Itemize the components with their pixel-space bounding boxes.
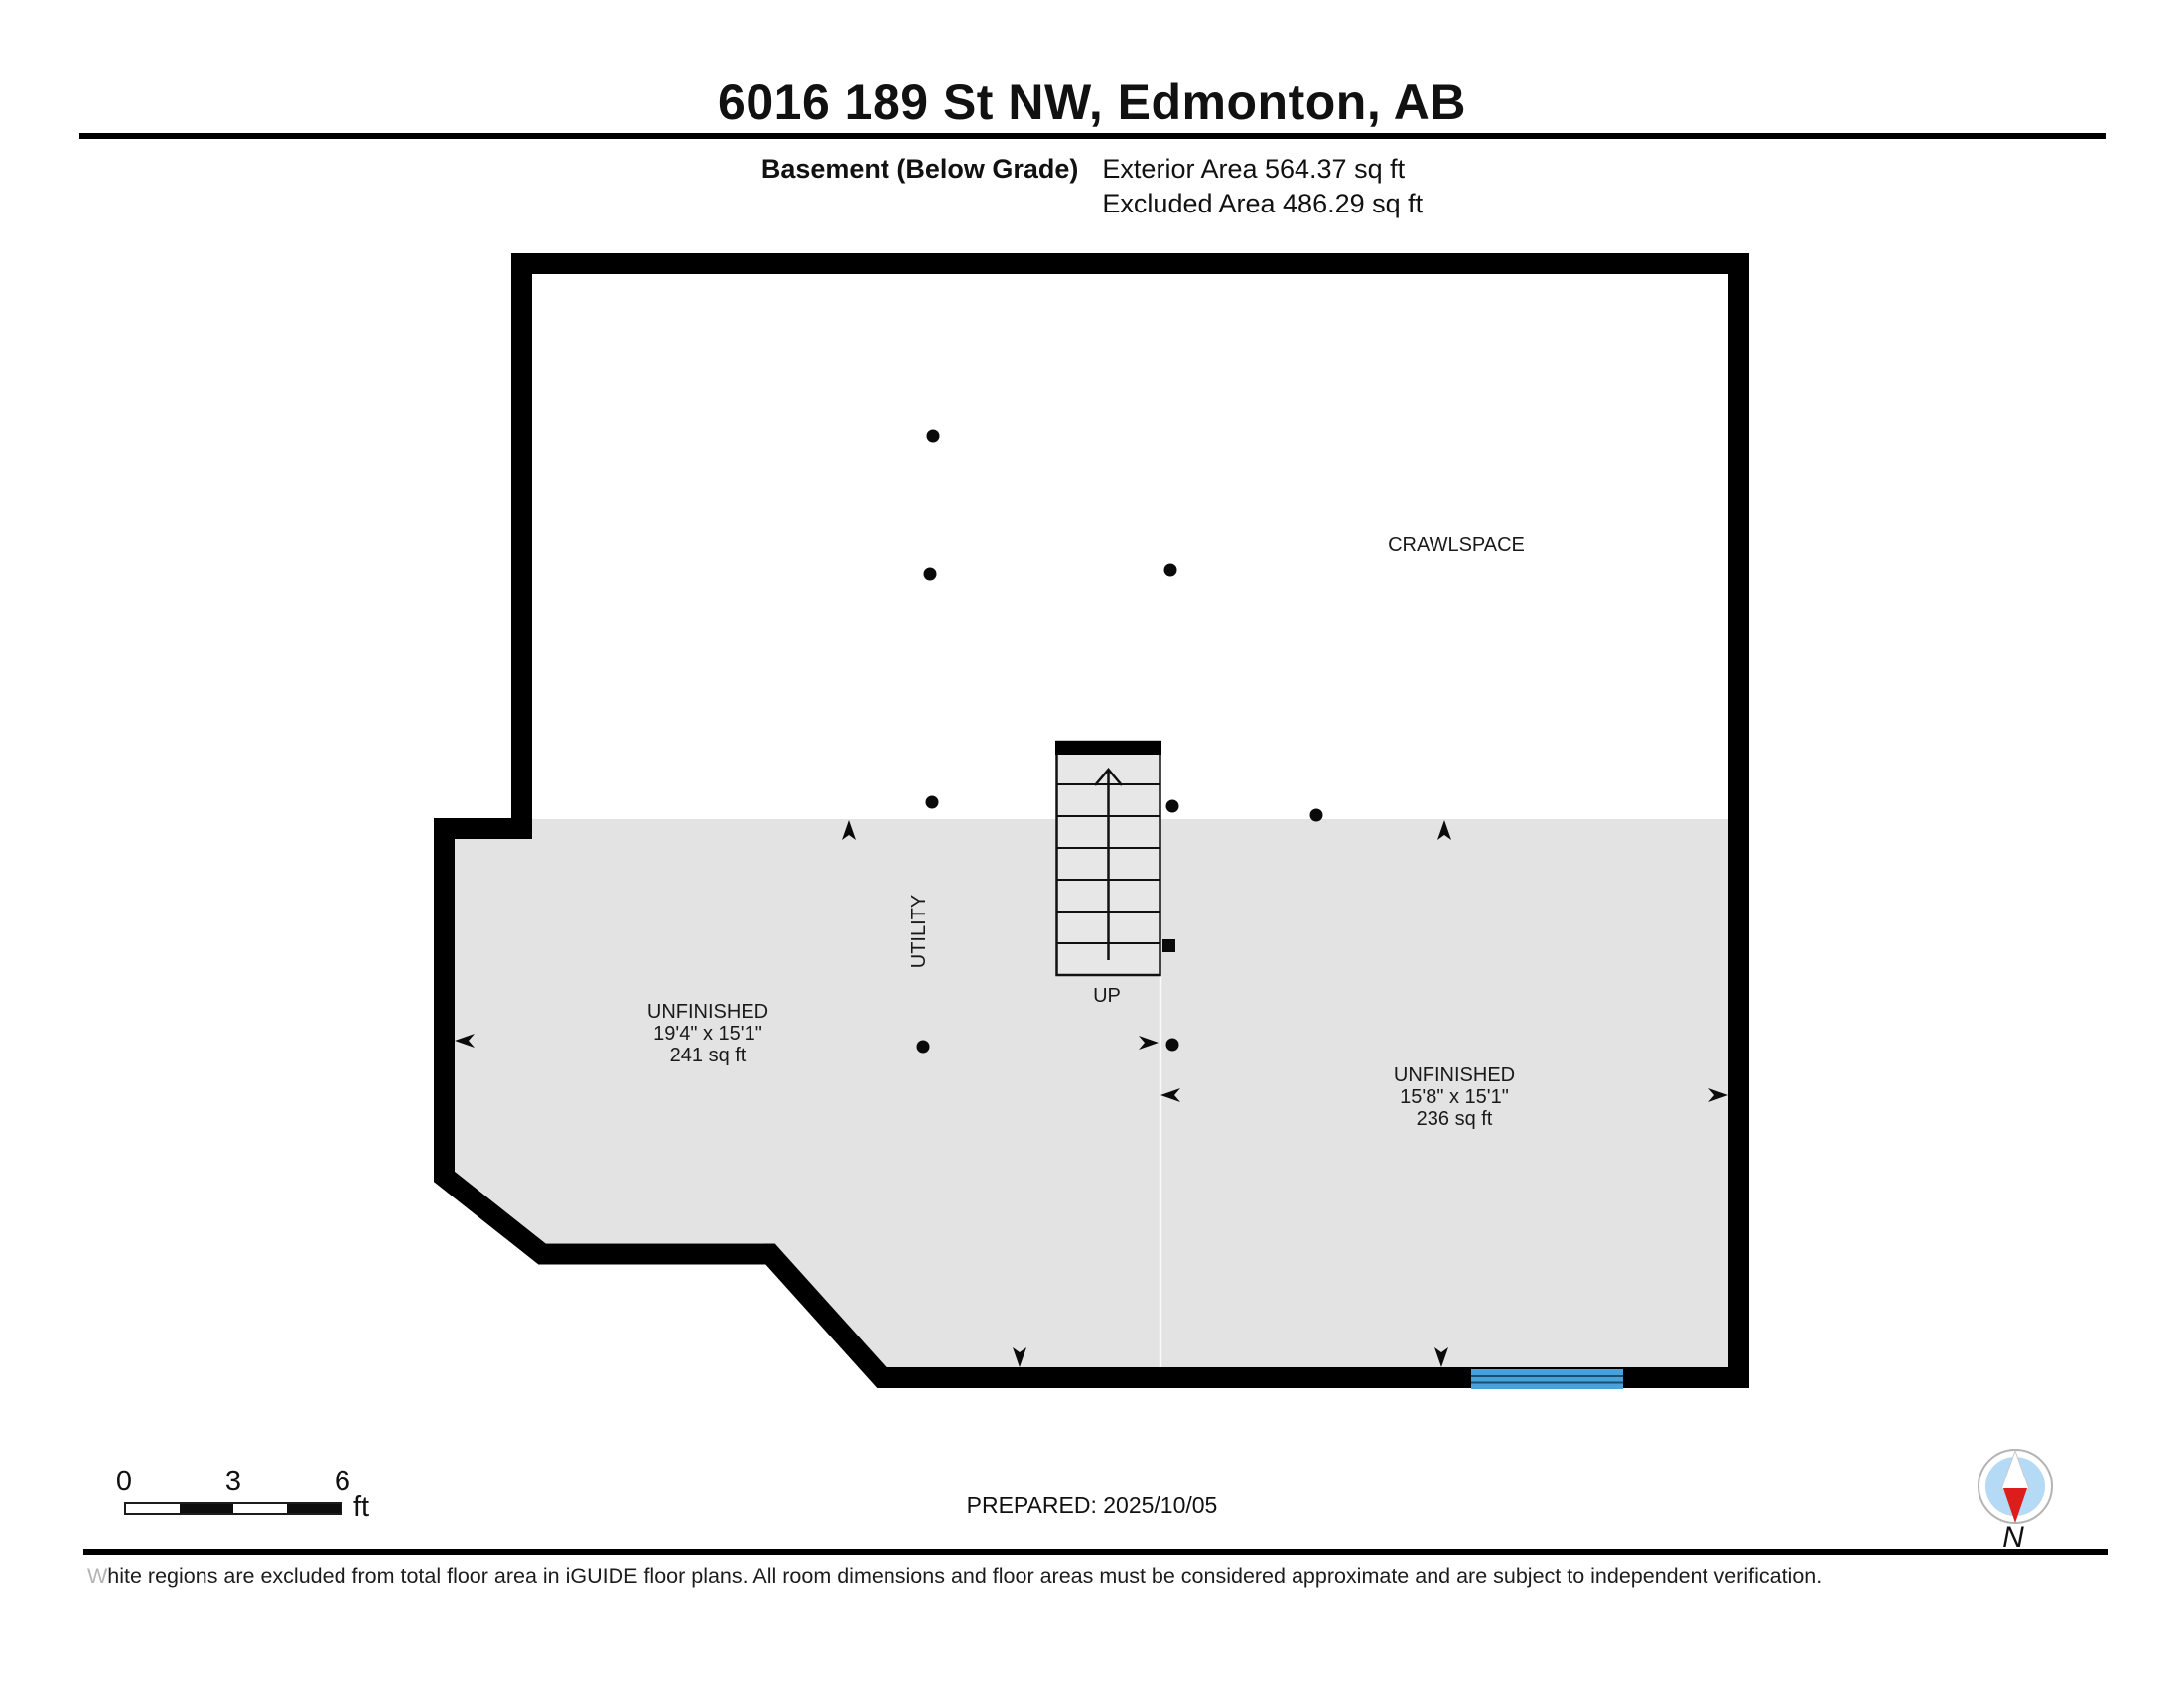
room-area: 241 sq ft — [609, 1045, 807, 1066]
camera-position-dot — [1310, 809, 1323, 822]
floor-plan-canvas — [0, 0, 2184, 1688]
room-dimensions: 15'8" x 15'1" — [1355, 1086, 1554, 1108]
room-label-unfinished-left: UNFINISHED 19'4" x 15'1" 241 sq ft — [609, 1001, 807, 1066]
room-name: UNFINISHED — [1355, 1064, 1554, 1086]
camera-position-dot — [1164, 564, 1177, 577]
footer-divider-line — [83, 1549, 2108, 1555]
staircase — [1055, 741, 1161, 975]
stair-top-wall — [1055, 741, 1161, 755]
camera-position-dot — [924, 568, 937, 581]
stairs-up-label: UP — [1057, 985, 1157, 1007]
room-dimensions: 19'4" x 15'1" — [609, 1023, 807, 1045]
camera-position-dot — [927, 430, 940, 443]
camera-position-dot — [1166, 800, 1179, 813]
camera-position-dot — [926, 796, 939, 809]
room-area: 236 sq ft — [1355, 1108, 1554, 1130]
room-label-crawlspace: CRAWLSPACE — [1357, 534, 1556, 556]
disclaimer-text: White regions are excluded from total fl… — [87, 1563, 2122, 1590]
room-name: UNFINISHED — [609, 1001, 807, 1023]
room-label-unfinished-right: UNFINISHED 15'8" x 15'1" 236 sq ft — [1355, 1064, 1554, 1130]
window — [1471, 1369, 1623, 1389]
camera-position-dot — [1166, 1039, 1179, 1052]
support-post — [1162, 939, 1175, 952]
prepared-date: PREPARED: 2025/10/05 — [0, 1492, 2184, 1519]
room-label-utility: UTILITY — [908, 857, 930, 1006]
camera-position-dot — [917, 1041, 930, 1054]
